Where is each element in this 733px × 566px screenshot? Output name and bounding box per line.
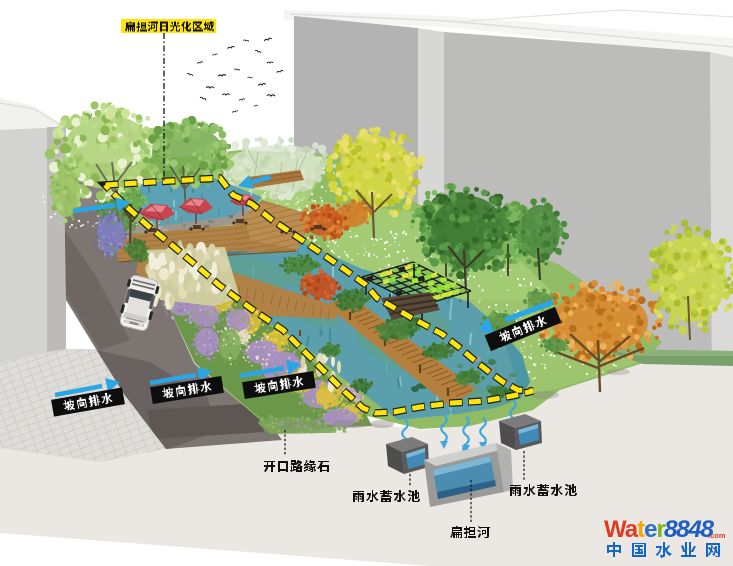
svg-text:8848: 8848 (664, 516, 714, 543)
svg-text:.com: .com (708, 531, 726, 540)
svg-text:Water: Water (604, 516, 665, 543)
